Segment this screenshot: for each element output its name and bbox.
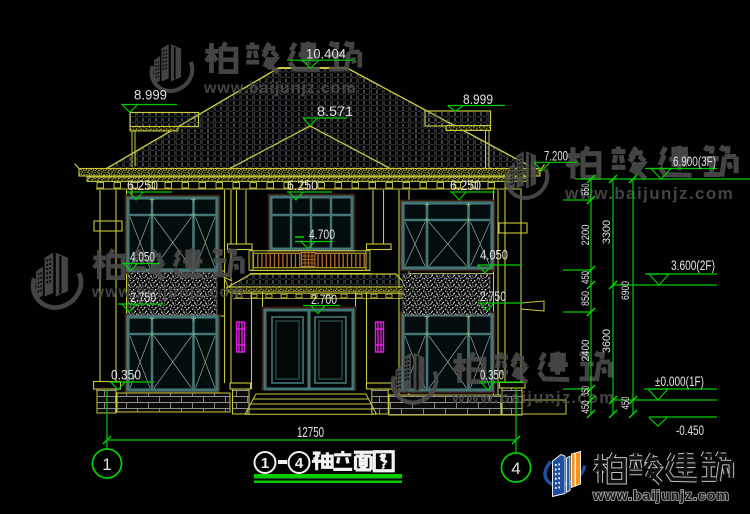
svg-text:6900: 6900	[620, 281, 632, 300]
svg-text:10.404: 10.404	[306, 47, 346, 62]
svg-text:1: 1	[261, 455, 269, 472]
svg-text:12750: 12750	[297, 424, 324, 441]
svg-text:4: 4	[295, 455, 304, 472]
svg-text:350: 350	[580, 386, 592, 396]
svg-text:450: 450	[580, 271, 592, 284]
svg-text:450: 450	[620, 397, 632, 410]
svg-text:0.350: 0.350	[111, 368, 141, 383]
svg-text:4.050: 4.050	[480, 248, 508, 263]
svg-text:4.050: 4.050	[130, 250, 155, 265]
svg-text:6.250: 6.250	[450, 178, 481, 193]
svg-text:±0.000(1F): ±0.000(1F)	[655, 374, 704, 389]
svg-text:4.700: 4.700	[309, 227, 335, 242]
svg-text:0.350: 0.350	[480, 368, 504, 383]
svg-text:2.750: 2.750	[130, 290, 156, 305]
svg-text:2400: 2400	[580, 340, 592, 362]
svg-text:850: 850	[580, 291, 592, 306]
svg-text:3.600(2F): 3.600(2F)	[671, 258, 715, 273]
svg-text:450: 450	[580, 401, 592, 414]
svg-text:2.750: 2.750	[480, 289, 506, 304]
svg-text:6.900(3F): 6.900(3F)	[673, 154, 716, 169]
svg-text:6.250: 6.250	[287, 178, 318, 193]
svg-text:1: 1	[102, 455, 111, 474]
svg-text:8.999: 8.999	[463, 92, 493, 107]
svg-text:www.baijunjz.com: www.baijunjz.com	[592, 487, 730, 503]
svg-text:8.571: 8.571	[317, 104, 353, 119]
svg-text:4: 4	[511, 459, 520, 478]
svg-text:www.baijunjz.com: www.baijunjz.com	[203, 80, 357, 97]
svg-text:7.200: 7.200	[544, 149, 568, 164]
svg-text:3600: 3600	[601, 329, 613, 353]
svg-text:2.700: 2.700	[311, 292, 337, 307]
svg-text:650: 650	[580, 184, 592, 196]
svg-text:www.baijunjz.com: www.baijunjz.com	[91, 284, 245, 301]
svg-text:2200: 2200	[580, 225, 592, 246]
svg-text:6.250: 6.250	[127, 178, 158, 193]
svg-text:3300: 3300	[601, 220, 613, 244]
svg-text:8.999: 8.999	[134, 88, 167, 103]
svg-text:-0.450: -0.450	[676, 423, 704, 438]
